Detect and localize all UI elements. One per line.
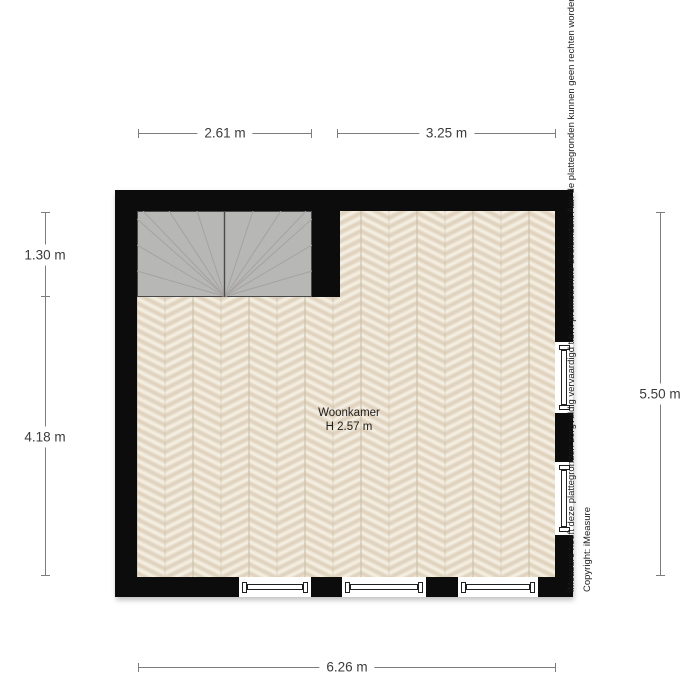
dimension-label-left-upper: 1.30 m	[22, 244, 67, 265]
window-cap	[530, 582, 535, 593]
exterior-walls: Woonkamer H 2.57 m	[115, 190, 573, 597]
dimension-tick	[656, 212, 665, 213]
floor-plan-canvas: 2.61 m 3.25 m 1.30 m 4.18 m 5.50 m 6.26 …	[0, 0, 700, 700]
dimension-tick	[311, 129, 312, 138]
dimension-label-bottom: 6.26 m	[319, 660, 374, 675]
dimension-tick	[337, 129, 338, 138]
copyright-text: Copyright: iMeasure	[581, 507, 594, 592]
window-glazing	[350, 584, 418, 590]
dimension-top-right: 3.25 m	[337, 129, 556, 138]
dimension-label-top-left: 2.61 m	[197, 126, 252, 141]
dimension-label-left-lower: 4.18 m	[22, 426, 67, 447]
window-bottom-middle	[342, 577, 426, 597]
window-glazing	[466, 584, 530, 590]
dimension-right: 5.50 m	[656, 212, 665, 576]
dimension-tick	[41, 575, 50, 576]
dimension-left-upper: 1.30 m	[41, 212, 50, 297]
staircase-drawing	[137, 211, 312, 297]
window-cap	[303, 582, 308, 593]
room-ceiling-height: H 2.57 m	[318, 420, 380, 434]
room-label: Woonkamer H 2.57 m	[318, 406, 380, 434]
interior-wall-stub	[312, 211, 340, 297]
dimension-tick	[555, 129, 556, 138]
staircase	[137, 211, 312, 297]
disclaimer-text: iMeasure heeft deze plattegronden zorgvu…	[565, 0, 578, 592]
window-bottom-left	[239, 577, 311, 597]
dimension-label-top-right: 3.25 m	[419, 126, 474, 141]
dimension-left-lower: 4.18 m	[41, 297, 50, 576]
dimension-label-right: 5.50 m	[637, 384, 682, 405]
window-glazing	[247, 584, 303, 590]
dimension-bottom: 6.26 m	[138, 663, 556, 672]
window-bottom-right	[458, 577, 538, 597]
dimension-top-left: 2.61 m	[138, 129, 312, 138]
dimension-tick	[656, 575, 665, 576]
dimension-tick	[138, 663, 139, 672]
window-cap	[418, 582, 423, 593]
dimension-tick	[555, 663, 556, 672]
dimension-tick	[41, 212, 50, 213]
room-name: Woonkamer	[318, 406, 380, 420]
dimension-tick	[138, 129, 139, 138]
